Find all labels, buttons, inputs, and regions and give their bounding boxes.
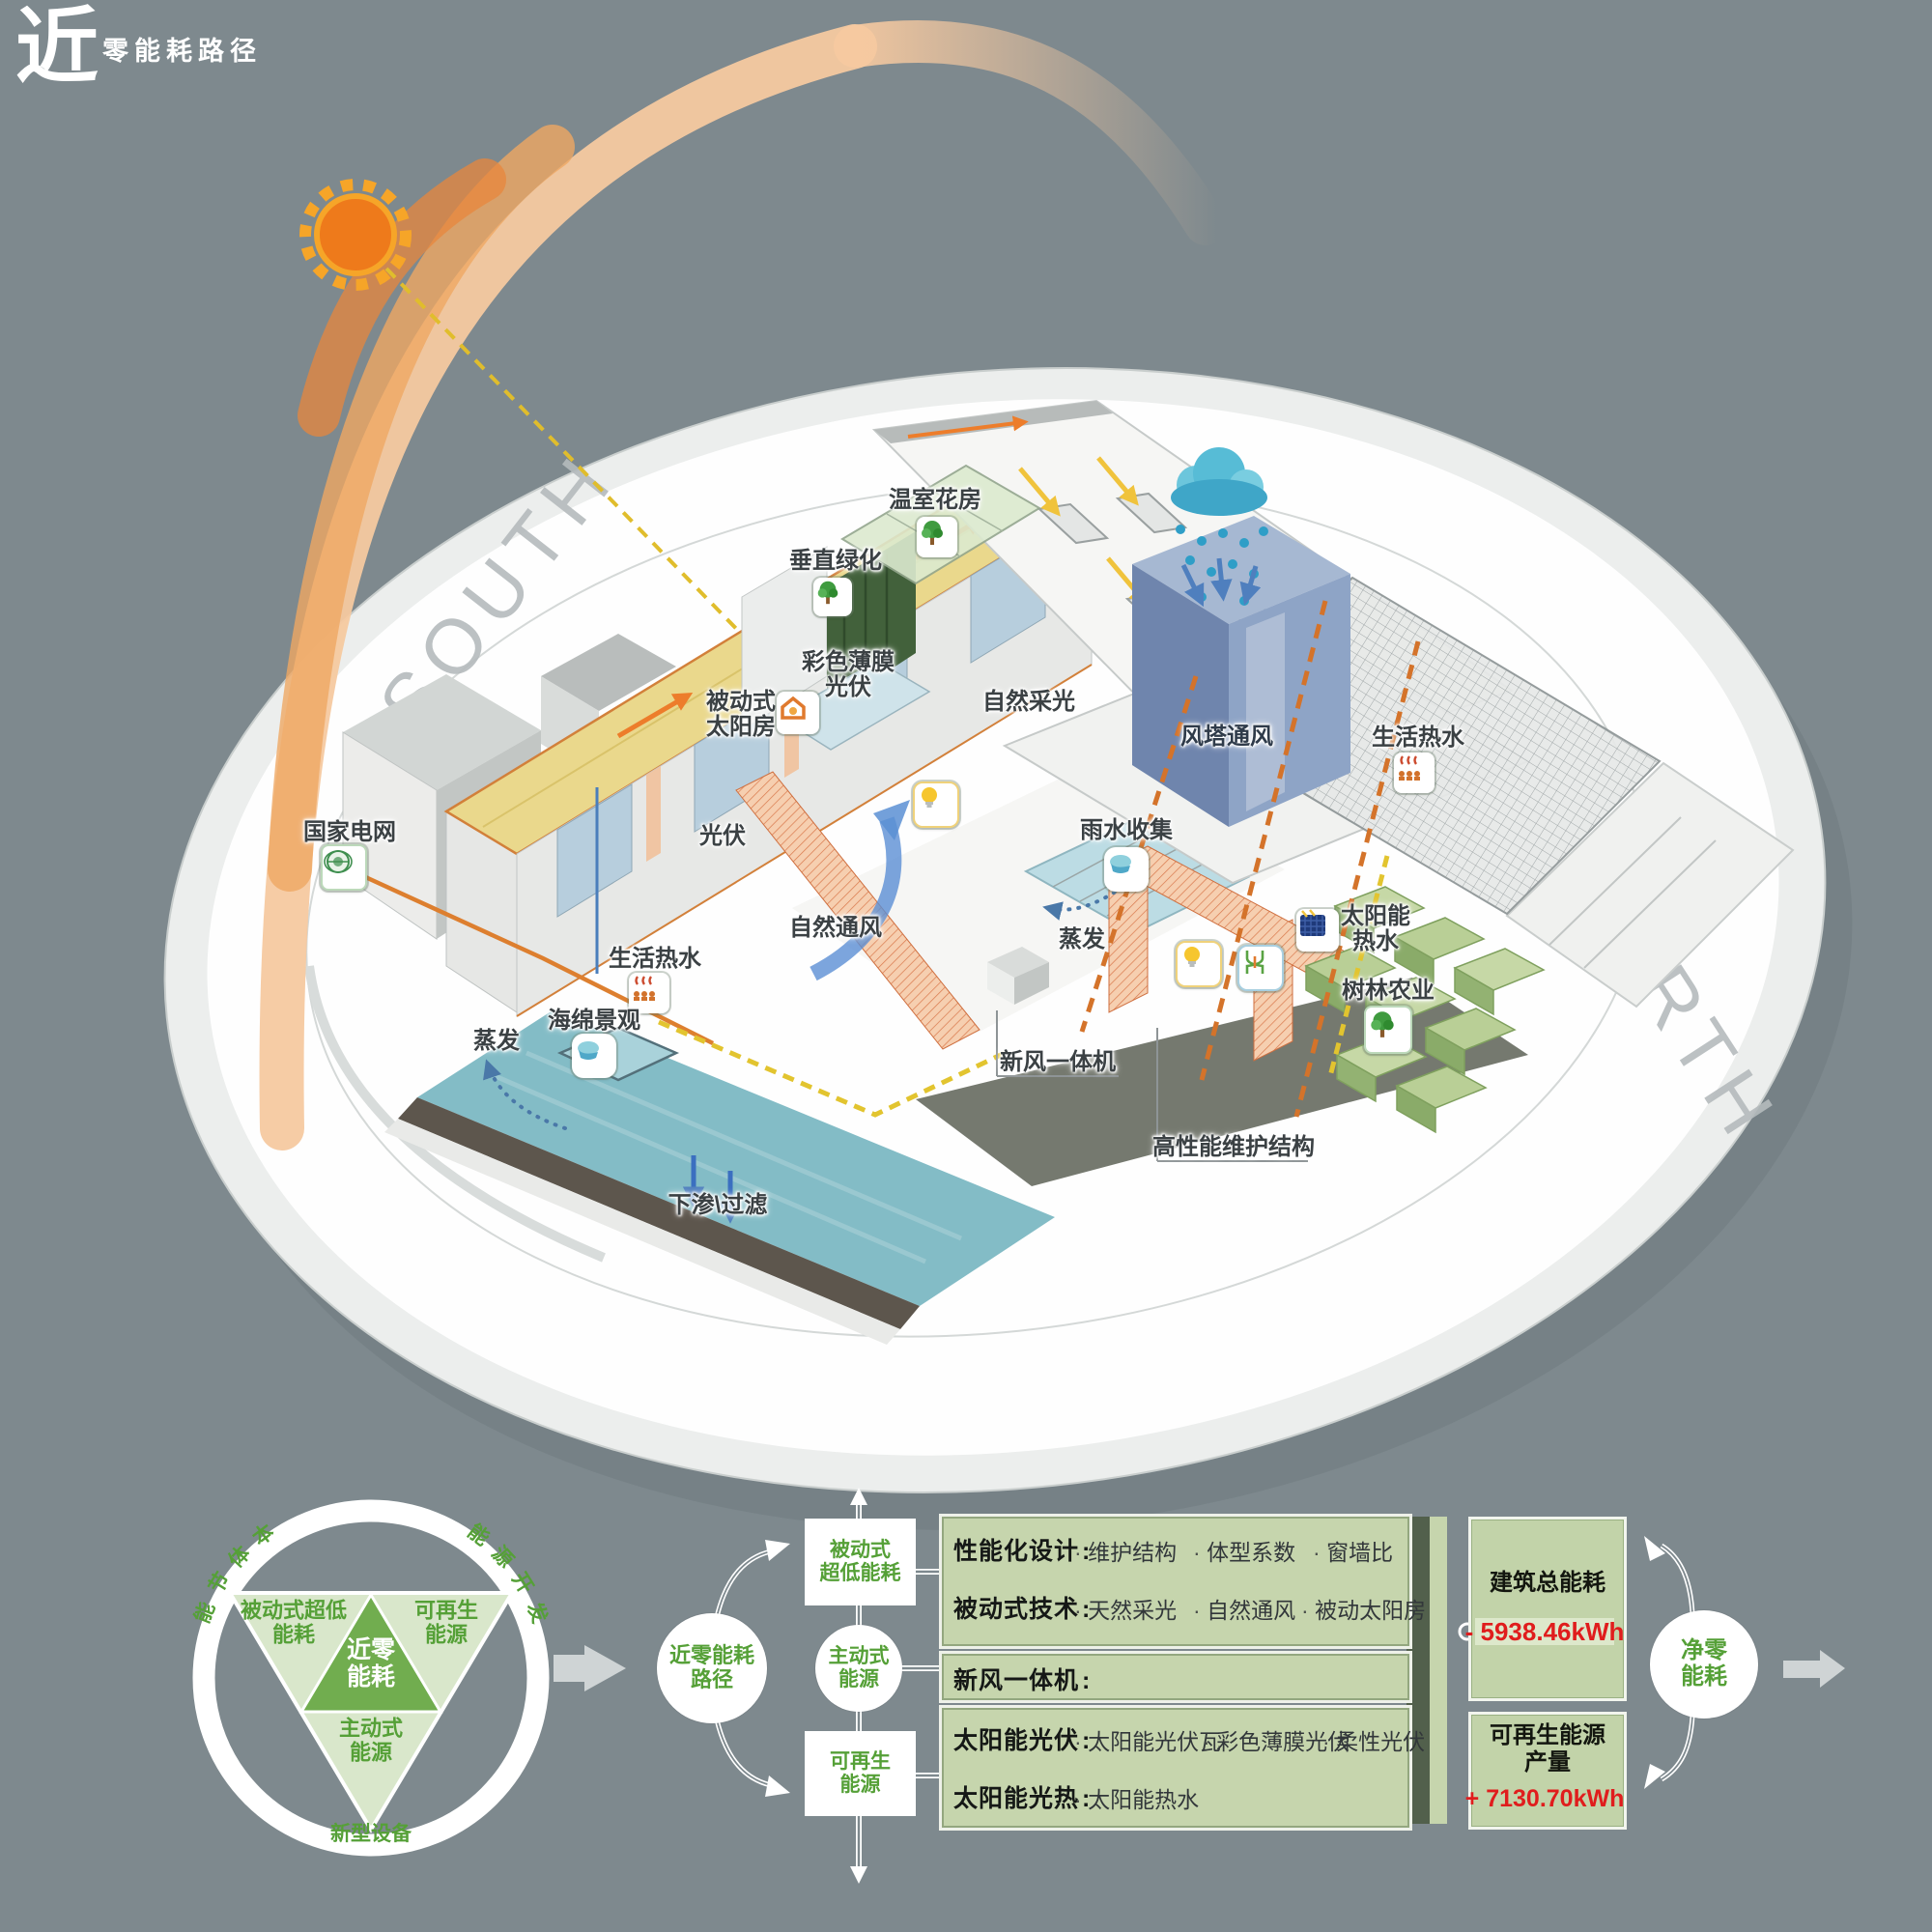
panel-row3-label2: 太阳能光热 bbox=[953, 1779, 1091, 1814]
label-vertical-green: 垂直绿化 bbox=[789, 549, 882, 574]
water-dish-icon bbox=[1104, 847, 1149, 892]
solar-panel-icon bbox=[1296, 909, 1339, 952]
panel-row1-label1: 性能化设计 bbox=[953, 1532, 1091, 1567]
label-natural-vent: 自然通风 bbox=[789, 916, 882, 941]
venn-renewable-label: 可再生 能源 bbox=[414, 1599, 478, 1646]
panel-renewable: 太阳能光伏 太阳能光伏瓦 彩色薄膜光伏 柔性光伏 太阳能光热 太阳能热水 bbox=[942, 1708, 1409, 1828]
passive-node-label: 被动式 超低能耗 bbox=[820, 1539, 901, 1584]
renewable-output-title: 可再生能源 产量 bbox=[1471, 1722, 1624, 1776]
panel-row3-item: 太阳能热水 bbox=[1074, 1781, 1199, 1814]
aggregator-bar bbox=[1406, 1517, 1430, 1824]
label-greenhouse: 温室花房 bbox=[889, 488, 981, 513]
label-passive-solar-line2: 太阳房 bbox=[706, 714, 776, 740]
panel-row3-item: 柔性光伏 bbox=[1322, 1723, 1425, 1756]
tree-icon bbox=[917, 517, 957, 557]
renewable-node: 可再生 能源 bbox=[805, 1731, 916, 1816]
active-line1: 主动式 bbox=[829, 1645, 890, 1667]
label-wind-tower: 风塔通风 bbox=[1180, 724, 1273, 750]
net-zero-label: 净零 能耗 bbox=[1681, 1638, 1727, 1690]
venn-passive-line1: 被动式超低 bbox=[241, 1598, 347, 1622]
label-film-pv-line2: 光伏 bbox=[825, 674, 871, 700]
net-zero-node: 净零 能耗 bbox=[1650, 1610, 1758, 1719]
panel-row2-label: 新风一体机 bbox=[953, 1662, 1091, 1696]
label-hot-water-left: 生活热水 bbox=[609, 947, 701, 972]
total-energy-box: 建筑总能耗 - 5938.46kWh bbox=[1468, 1517, 1627, 1701]
panel-row3-label1: 太阳能光伏 bbox=[953, 1721, 1091, 1756]
renewable-output-band: + 7130.70kWh bbox=[1475, 1784, 1614, 1813]
venn-active-line1: 主动式 bbox=[339, 1716, 403, 1740]
hub-line1: 近零能耗 bbox=[669, 1643, 754, 1667]
heat-exchange-pipes-icon bbox=[1237, 945, 1284, 991]
active-node: 主动式 能源 bbox=[815, 1625, 902, 1712]
venn-active-label: 主动式 能源 bbox=[339, 1717, 403, 1764]
venn-arc-bottom: 新型设备 bbox=[330, 1823, 412, 1846]
aggregator-strip bbox=[1430, 1517, 1447, 1824]
renewable-output-box: 可再生能源 产量 + 7130.70kWh bbox=[1468, 1712, 1627, 1830]
label-passive-solar-line1: 被动式 bbox=[706, 689, 776, 715]
infographic-canvas: SOUTH NORTH bbox=[0, 0, 1932, 1932]
passive-line2: 超低能耗 bbox=[820, 1562, 901, 1584]
panel-row1-item: 被动太阳房 bbox=[1301, 1592, 1426, 1625]
net-zero-line2: 能耗 bbox=[1681, 1663, 1727, 1690]
panel-passive-tech: 性能化设计 维护结构 体型系数 窗墙比 被动式技术 天然采光 自然通风 被动太阳… bbox=[942, 1517, 1409, 1646]
renewable-line1: 可再生 bbox=[830, 1750, 891, 1773]
renewable-output-title-line1: 可再生能源 bbox=[1490, 1722, 1605, 1748]
venn-active-line2: 能源 bbox=[350, 1740, 392, 1764]
passive-node: 被动式 超低能耗 bbox=[805, 1519, 916, 1605]
hub-line2: 路径 bbox=[691, 1667, 733, 1691]
label-evaporation-left: 蒸发 bbox=[473, 1029, 520, 1054]
venn-center-line1: 近零 bbox=[347, 1636, 395, 1663]
solar-house-icon bbox=[777, 692, 819, 734]
label-infiltration: 下渗\过滤 bbox=[668, 1193, 768, 1218]
panel-row1-item: 体型系数 bbox=[1193, 1534, 1295, 1567]
renewable-node-label: 可再生 能源 bbox=[830, 1750, 891, 1796]
label-passive-solar: 被动式 太阳房 bbox=[706, 690, 776, 740]
panel-row1-item: 天然采光 bbox=[1074, 1592, 1177, 1625]
bulb-icon bbox=[1176, 941, 1222, 987]
bulb-icon bbox=[913, 781, 959, 828]
active-line2: 能源 bbox=[838, 1668, 879, 1690]
active-node-label: 主动式 能源 bbox=[829, 1645, 890, 1690]
label-film-pv-line1: 彩色薄膜 bbox=[802, 649, 895, 675]
logo: 近零能耗路径 bbox=[15, 6, 258, 89]
globe-icon bbox=[321, 844, 367, 891]
tree-icon bbox=[1364, 1006, 1412, 1054]
renewable-output-title-line2: 产量 bbox=[1524, 1749, 1571, 1776]
panel-row3-item: 太阳能光伏瓦 bbox=[1074, 1723, 1221, 1756]
renewable-output-value: + 7130.70kWh bbox=[1465, 1785, 1625, 1813]
label-hot-water-right: 生活热水 bbox=[1372, 725, 1464, 751]
venn-renewable-line2: 能源 bbox=[425, 1622, 468, 1646]
venn-center-label: 近零 能耗 bbox=[347, 1636, 395, 1690]
panel-row1-item: 自然通风 bbox=[1193, 1592, 1295, 1625]
logo-big-char: 近 bbox=[15, 0, 99, 96]
tree-icon bbox=[813, 578, 852, 616]
hub-node: 近零能耗 路径 bbox=[657, 1613, 767, 1723]
label-solar-hot-water: 太阳能 热水 bbox=[1341, 904, 1410, 954]
label-sponge: 海绵景观 bbox=[548, 1009, 640, 1034]
net-zero-line1: 净零 bbox=[1681, 1637, 1727, 1663]
label-ahu: 新风一体机 bbox=[1000, 1050, 1116, 1075]
label-daylight: 自然采光 bbox=[982, 690, 1075, 715]
total-energy-band: - 5938.46kWh bbox=[1475, 1618, 1614, 1645]
panel-row1-label2: 被动式技术 bbox=[953, 1590, 1091, 1625]
venn-center-line2: 能耗 bbox=[347, 1663, 395, 1690]
renewable-line2: 能源 bbox=[840, 1774, 881, 1796]
venn-passive-label: 被动式超低 能耗 bbox=[241, 1599, 347, 1646]
venn-renewable-line1: 可再生 bbox=[414, 1598, 478, 1622]
venn-passive-line2: 能耗 bbox=[272, 1622, 315, 1646]
logo-text: 零能耗路径 bbox=[102, 37, 262, 66]
label-pv: 光伏 bbox=[699, 824, 746, 849]
label-evaporation-center: 蒸发 bbox=[1059, 927, 1105, 952]
label-envelope: 高性能维护结构 bbox=[1152, 1135, 1315, 1160]
passive-line1: 被动式 bbox=[830, 1539, 891, 1561]
label-rain-collect: 雨水收集 bbox=[1080, 818, 1173, 843]
total-energy-value: - 5938.46kWh bbox=[1465, 1617, 1625, 1647]
panel-row1-item: 窗墙比 bbox=[1313, 1534, 1393, 1567]
hub-label: 近零能耗 路径 bbox=[669, 1644, 754, 1691]
label-state-grid: 国家电网 bbox=[303, 820, 396, 845]
panel-row1-item: 维护结构 bbox=[1074, 1534, 1177, 1567]
water-dish-icon bbox=[572, 1034, 616, 1078]
total-energy-title: 建筑总能耗 bbox=[1471, 1570, 1624, 1597]
label-forest-agri: 树林农业 bbox=[1342, 979, 1435, 1004]
label-solar-hw-line1: 太阳能 bbox=[1341, 903, 1410, 929]
panel-ahu: 新风一体机 bbox=[942, 1654, 1409, 1700]
label-solar-hw-line2: 热水 bbox=[1352, 928, 1399, 954]
hot-water-icon bbox=[1394, 753, 1435, 793]
